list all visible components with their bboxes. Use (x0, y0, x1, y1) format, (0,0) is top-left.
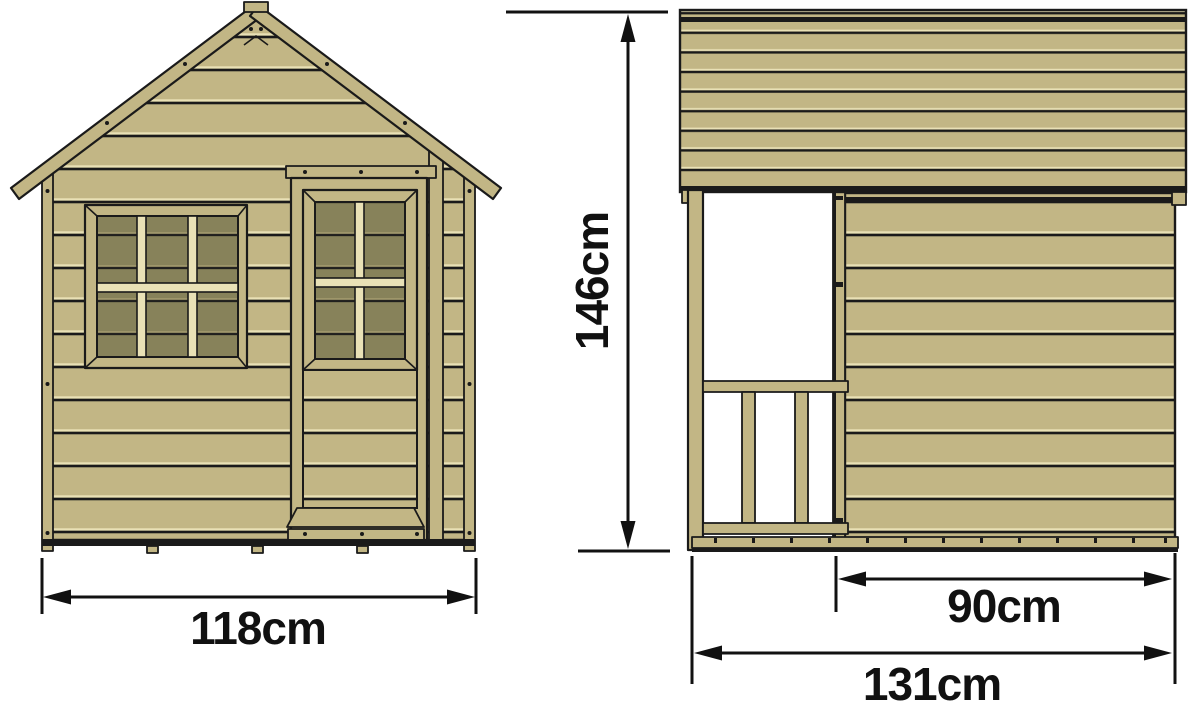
front-view (11, 2, 501, 553)
front-foot (357, 546, 368, 553)
side-roof (680, 10, 1186, 205)
porch-post (688, 190, 703, 550)
door-lower-panel (303, 370, 417, 508)
front-width-label: 118cm (190, 601, 326, 655)
door-to-back-label: 90cm (947, 579, 1061, 633)
porch-baluster (742, 392, 755, 523)
door-hinge (833, 282, 843, 287)
front-foot (252, 546, 263, 553)
front-base (42, 539, 475, 553)
depth-label: 131cm (863, 657, 1001, 711)
door-hinge (833, 196, 843, 200)
roof-apex-cap (244, 2, 268, 12)
porch-railing (703, 381, 848, 534)
playhouse-dimension-diagram: 118cm 146cm 90cm 131cm (0, 0, 1200, 712)
door-sill (287, 508, 424, 527)
front-right-corner-trim (464, 175, 475, 551)
window-muntin-horizontal (97, 283, 238, 292)
eave-bracket-right (1172, 192, 1186, 205)
side-base (692, 537, 1178, 552)
front-foot (147, 546, 158, 553)
porch-baluster (795, 392, 808, 523)
door-muntin-horizontal (315, 278, 405, 287)
door-step (288, 529, 424, 540)
front-window (85, 205, 247, 368)
side-view (680, 10, 1186, 552)
railing-bottom-rail (703, 523, 848, 534)
door-side-trim (429, 151, 443, 540)
side-wall (845, 193, 1175, 540)
height-label: 146cm (565, 212, 619, 350)
front-door (286, 166, 436, 540)
railing-top-rail (703, 381, 848, 392)
front-left-corner-trim (42, 171, 53, 551)
side-front-edge (833, 192, 845, 540)
